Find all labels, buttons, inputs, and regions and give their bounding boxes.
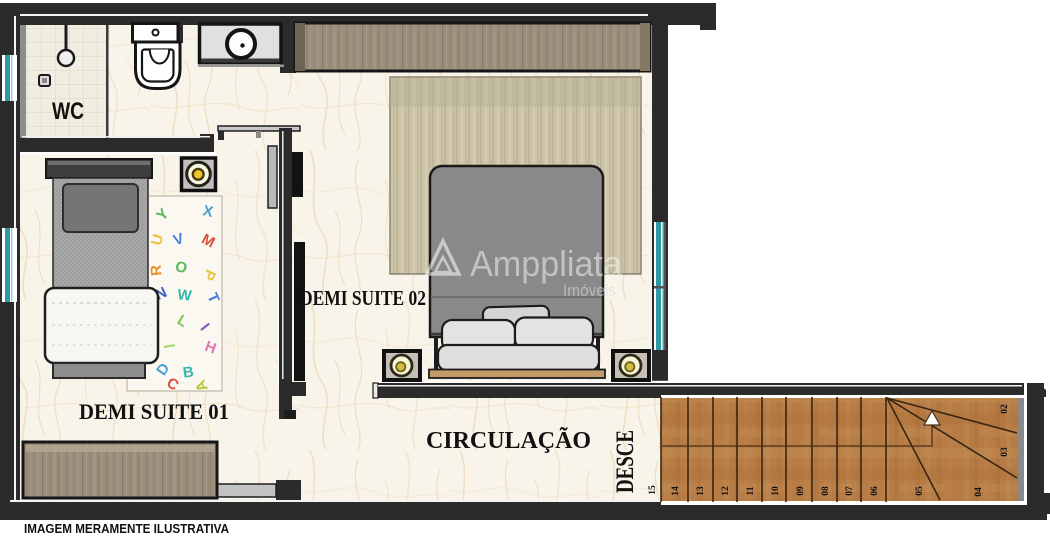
svg-text:R: R xyxy=(148,264,166,276)
svg-text:WC: WC xyxy=(52,98,84,125)
svg-text:04: 04 xyxy=(974,487,984,497)
svg-text:12: 12 xyxy=(721,486,731,496)
svg-text:09: 09 xyxy=(796,486,806,496)
svg-text:DEMI SUITE 01: DEMI SUITE 01 xyxy=(79,399,229,424)
svg-text:05: 05 xyxy=(915,486,925,496)
svg-text:07: 07 xyxy=(845,486,855,496)
svg-text:Imóveis: Imóveis xyxy=(563,281,616,300)
svg-text:15: 15 xyxy=(648,485,658,495)
svg-text:08: 08 xyxy=(821,486,831,496)
svg-text:W: W xyxy=(177,286,194,304)
svg-text:DESCE: DESCE xyxy=(612,430,639,493)
svg-text:11: 11 xyxy=(746,486,756,495)
svg-text:02: 02 xyxy=(1000,404,1010,414)
svg-text:10: 10 xyxy=(771,486,781,496)
svg-text:03: 03 xyxy=(1000,447,1010,457)
svg-text:14: 14 xyxy=(671,486,681,496)
svg-text:Amppliata: Amppliata xyxy=(470,243,623,284)
svg-text:CIRCULAÇÃO: CIRCULAÇÃO xyxy=(426,428,591,454)
svg-text:13: 13 xyxy=(696,486,706,496)
svg-text:IMAGEM MERAMENTE ILUSTRATIVA: IMAGEM MERAMENTE ILUSTRATIVA xyxy=(24,522,229,536)
svg-text:06: 06 xyxy=(870,486,880,496)
svg-text:DEMI SUITE 02: DEMI SUITE 02 xyxy=(300,286,426,310)
